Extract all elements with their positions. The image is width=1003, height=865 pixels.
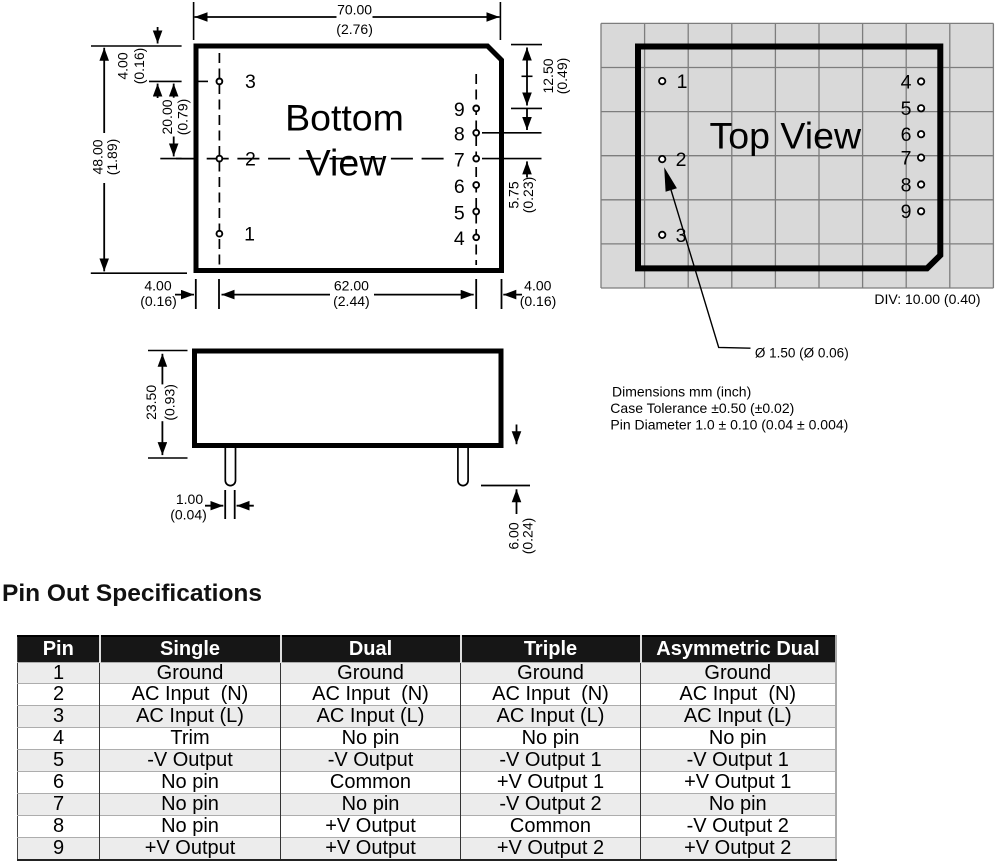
svg-text:8: 8 <box>901 174 912 196</box>
svg-text:5: 5 <box>454 202 465 224</box>
svg-text:9: 9 <box>901 201 912 223</box>
svg-text:(2.44): (2.44) <box>333 293 370 309</box>
svg-text:5: 5 <box>901 98 912 120</box>
svg-text:2: 2 <box>676 149 687 171</box>
svg-text:1.00: 1.00 <box>176 491 203 507</box>
svg-text:23.50: 23.50 <box>143 385 159 420</box>
svg-text:(0.49): (0.49) <box>554 58 570 95</box>
svg-text:20.00: 20.00 <box>159 99 175 134</box>
svg-text:2: 2 <box>245 148 256 170</box>
svg-text:62.00: 62.00 <box>334 277 369 293</box>
svg-text:(0.23): (0.23) <box>520 177 536 214</box>
svg-text:(0.16): (0.16) <box>131 48 147 85</box>
svg-text:7: 7 <box>901 147 912 169</box>
svg-text:Dimensions mm (inch): Dimensions mm (inch) <box>612 383 751 399</box>
svg-text:7: 7 <box>454 149 465 171</box>
svg-text:1: 1 <box>677 71 688 93</box>
svg-text:6: 6 <box>901 124 912 146</box>
svg-text:Bottom: Bottom <box>285 97 404 139</box>
svg-text:3: 3 <box>245 71 256 93</box>
svg-text:5.75: 5.75 <box>505 181 521 208</box>
svg-text:(0.24): (0.24) <box>519 518 535 555</box>
svg-text:DIV: 10.00 (0.40): DIV: 10.00 (0.40) <box>874 291 980 307</box>
svg-text:(2.76): (2.76) <box>336 21 373 37</box>
svg-text:9: 9 <box>454 99 465 121</box>
svg-text:70.00: 70.00 <box>337 2 372 18</box>
svg-text:4: 4 <box>454 228 465 250</box>
svg-text:6: 6 <box>454 176 465 198</box>
svg-text:8: 8 <box>454 124 465 146</box>
svg-text:4.00: 4.00 <box>115 52 131 79</box>
svg-text:4.00: 4.00 <box>144 277 171 293</box>
svg-text:(0.93): (0.93) <box>161 384 177 421</box>
svg-text:(1.89): (1.89) <box>104 139 120 176</box>
svg-text:Ø 1.50 (Ø 0.06): Ø 1.50 (Ø 0.06) <box>755 346 849 361</box>
svg-text:Pin Diameter 1.0 ± 0.10 (0.04: Pin Diameter 1.0 ± 0.10 (0.04 ± 0.004) <box>610 416 848 432</box>
svg-text:(0.16): (0.16) <box>140 293 177 309</box>
svg-text:View: View <box>306 142 388 184</box>
svg-text:(0.79): (0.79) <box>175 99 191 136</box>
svg-text:(0.04): (0.04) <box>170 507 207 523</box>
svg-text:1: 1 <box>244 224 255 246</box>
svg-text:Top View: Top View <box>710 115 862 157</box>
svg-text:Case Tolerance ±0.50 (±0.02): Case Tolerance ±0.50 (±0.02) <box>610 400 794 416</box>
svg-text:(0.16): (0.16) <box>520 293 557 309</box>
svg-text:4: 4 <box>901 71 912 93</box>
svg-text:4.00: 4.00 <box>524 277 551 293</box>
